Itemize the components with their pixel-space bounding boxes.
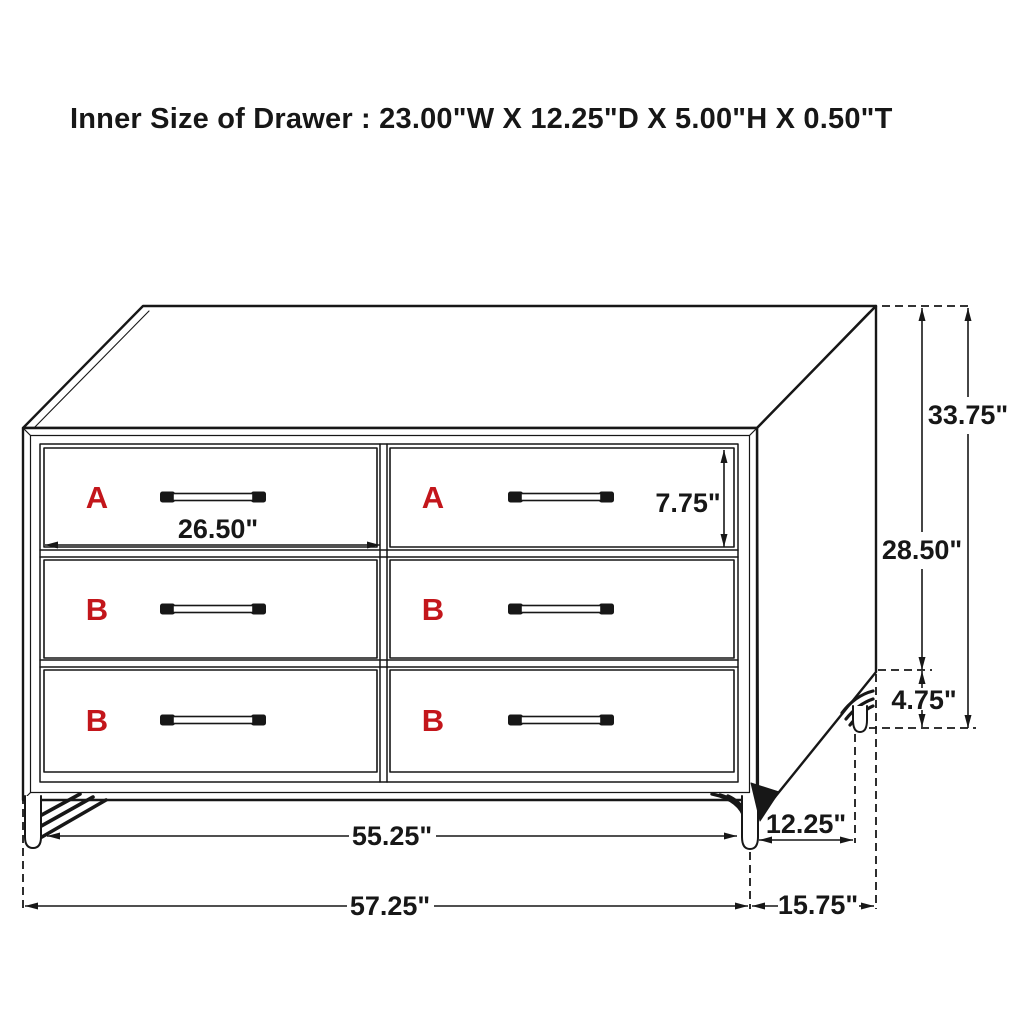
drawer-handle bbox=[508, 715, 614, 726]
dim-overall-height bbox=[965, 308, 972, 728]
label-case-height: 28.50" bbox=[882, 535, 962, 565]
drawer-letter-b-mid-left: B bbox=[86, 592, 108, 627]
drawer-handle bbox=[160, 715, 266, 726]
drawer-letter-b-bottom-left: B bbox=[86, 703, 108, 738]
dresser-dimension-diagram: 26.50" 7.75" 33.75" 28.50" 4.75" 55.25" … bbox=[0, 0, 1024, 1024]
drawer-handle bbox=[160, 604, 266, 615]
label-drawer-front-height: 7.75" bbox=[655, 488, 720, 518]
drawer-letter-b-mid-right: B bbox=[422, 592, 444, 627]
label-front-leg-spacing: 55.25" bbox=[352, 821, 432, 851]
label-drawer-front-width: 26.50" bbox=[178, 514, 258, 544]
dresser-top-face bbox=[23, 306, 876, 433]
label-overall-width: 57.25" bbox=[350, 891, 430, 921]
drawer-letter-a-left: A bbox=[86, 480, 108, 515]
drawer-handle bbox=[508, 604, 614, 615]
dim-case-height bbox=[919, 308, 926, 670]
drawer-letter-b-bottom-right: B bbox=[422, 703, 444, 738]
label-overall-depth: 15.75" bbox=[778, 890, 858, 920]
drawer-handle bbox=[508, 492, 614, 503]
front-left-leg bbox=[25, 794, 106, 848]
label-side-leg-spacing: 12.25" bbox=[766, 809, 846, 839]
diagram-page: Inner Size of Drawer : 23.00"W X 12.25"D… bbox=[0, 0, 1024, 1024]
drawer-letter-a-right: A bbox=[422, 480, 444, 515]
drawer-handle bbox=[160, 492, 266, 503]
label-overall-height: 33.75" bbox=[928, 400, 1008, 430]
label-leg-height: 4.75" bbox=[891, 685, 956, 715]
